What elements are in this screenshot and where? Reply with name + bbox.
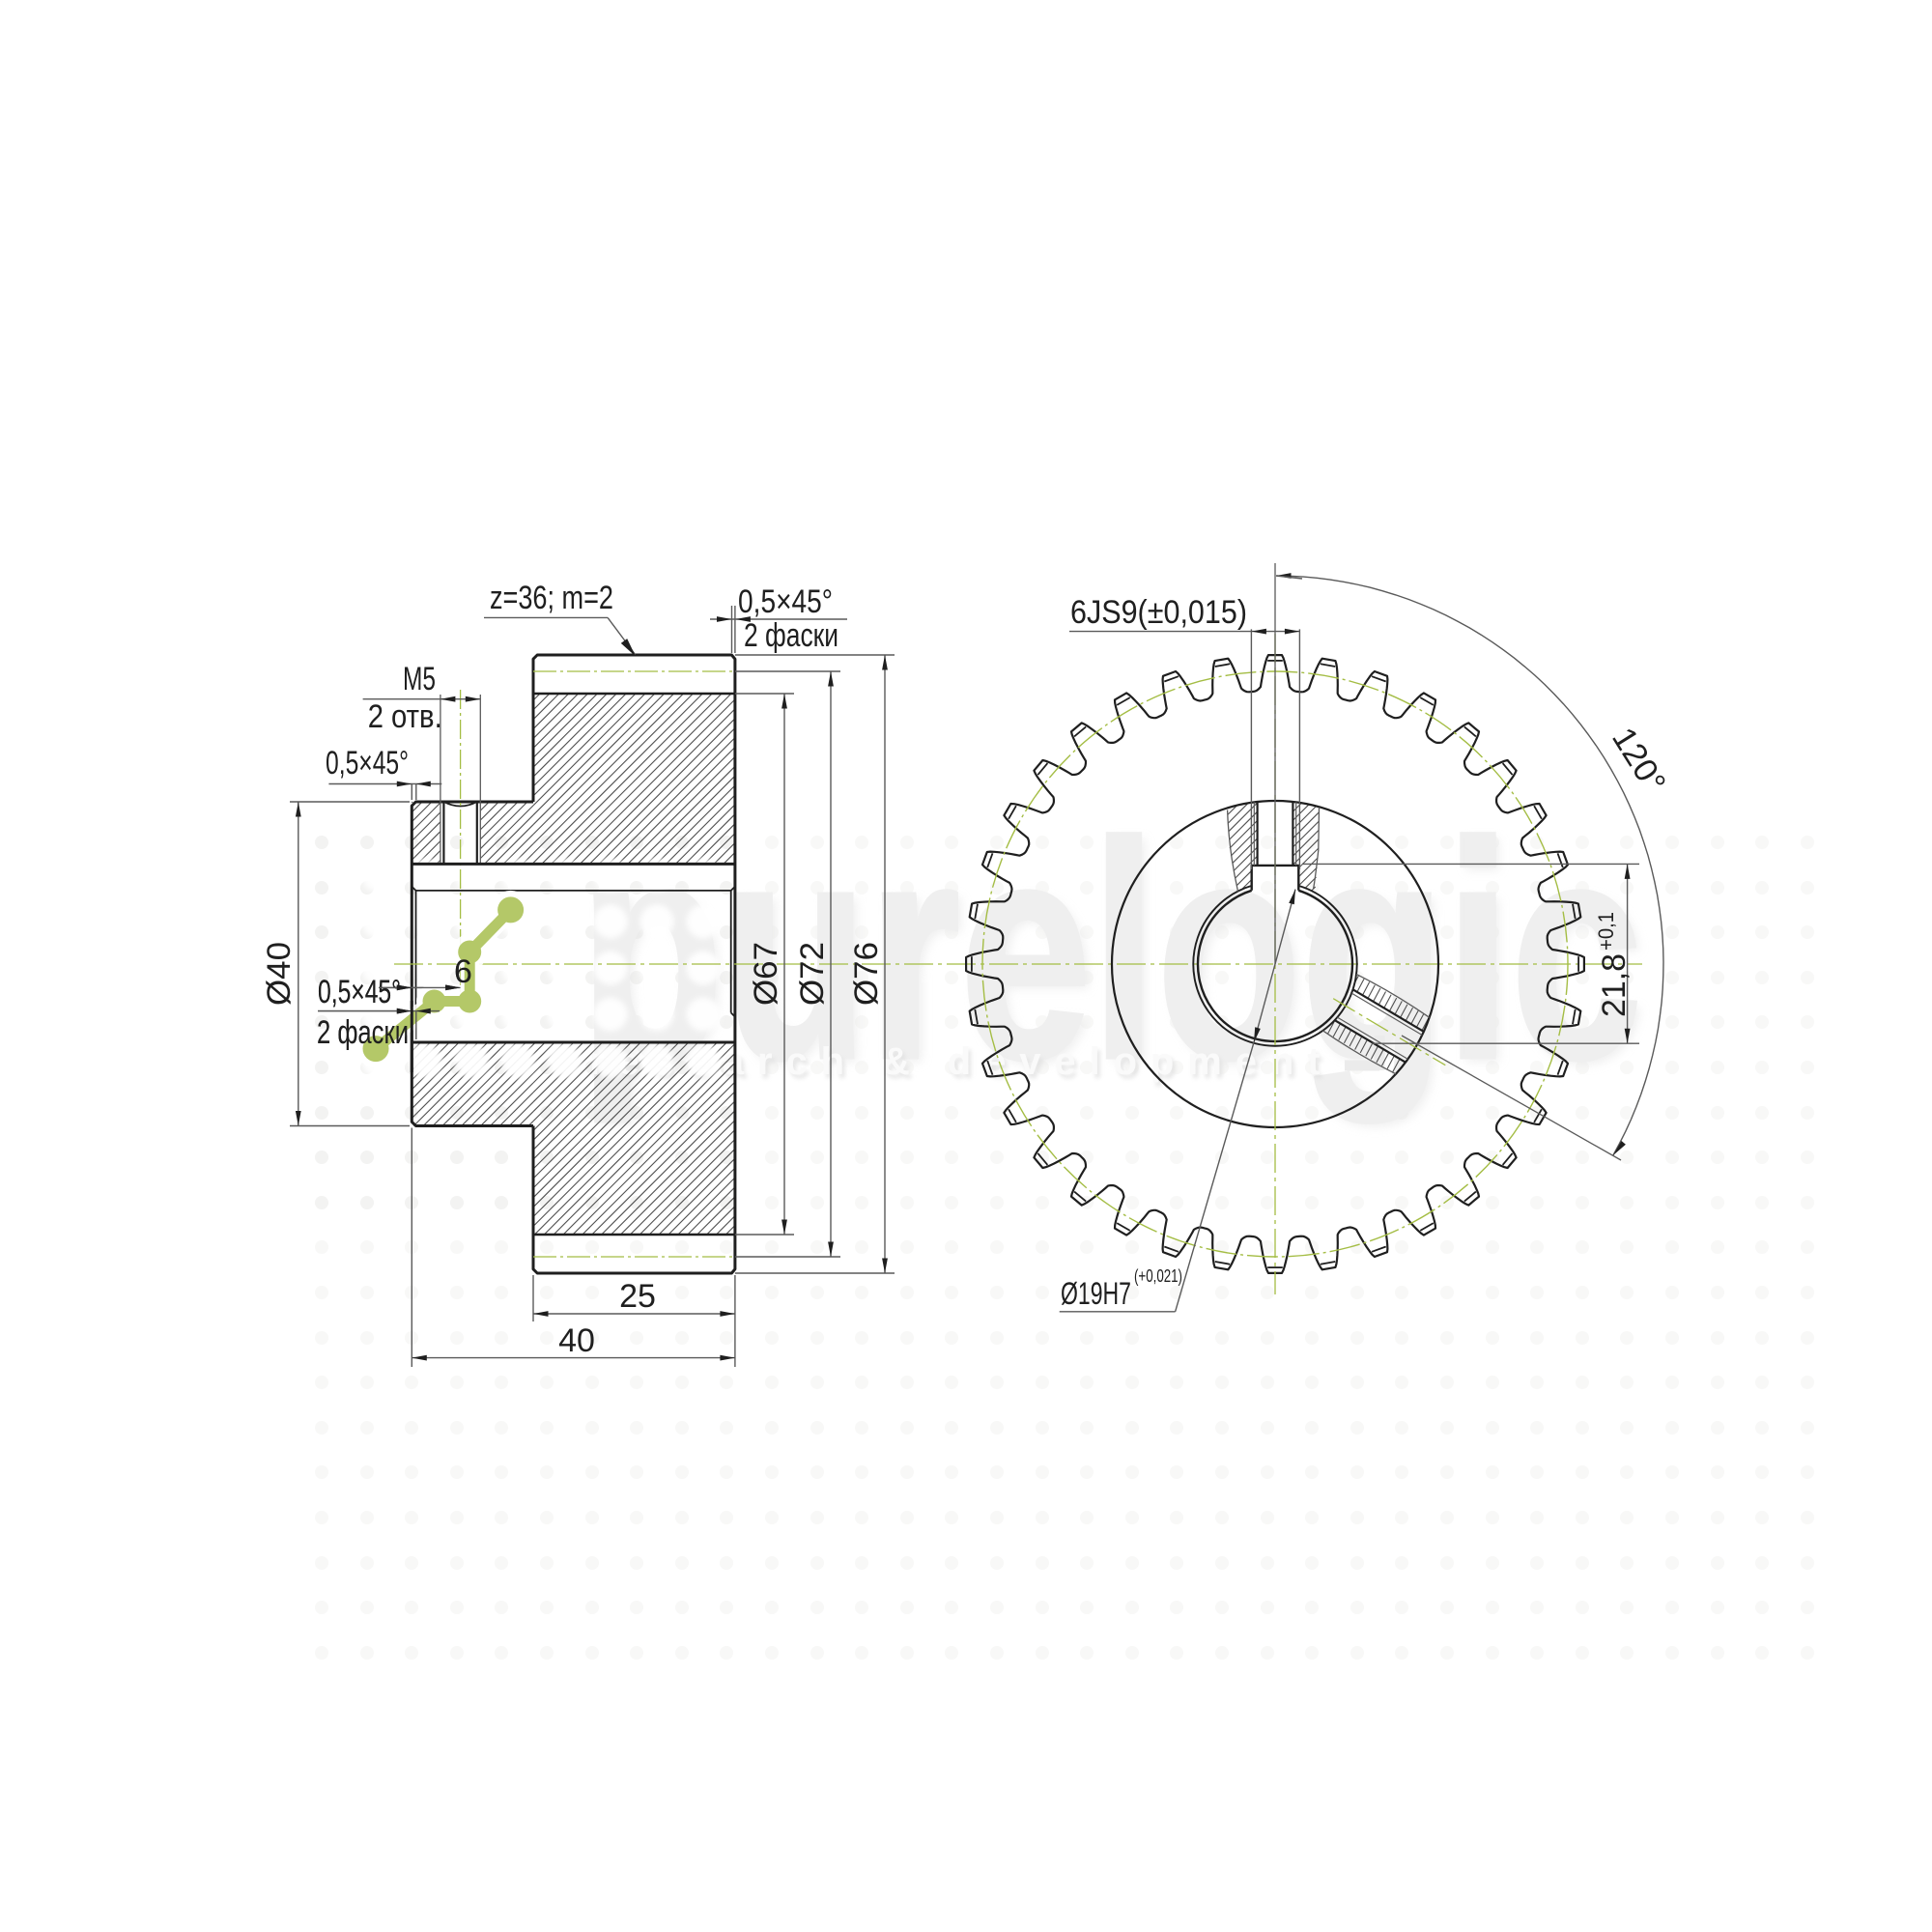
- svg-text:Ø19H7: Ø19H7: [1061, 1276, 1131, 1311]
- svg-text:Ø72: Ø72: [794, 942, 831, 1006]
- svg-text:0,5×45°: 0,5×45°: [318, 974, 401, 1010]
- svg-text:0,5×45°: 0,5×45°: [738, 583, 833, 620]
- svg-text:2 отв.: 2 отв.: [368, 698, 442, 735]
- svg-text:M5: M5: [403, 661, 436, 697]
- svg-text:(+0,021): (+0,021): [1134, 1266, 1182, 1286]
- svg-text:Ø40: Ø40: [261, 942, 298, 1006]
- svg-text:25: 25: [619, 1278, 656, 1315]
- svg-text:0,5×45°: 0,5×45°: [326, 745, 409, 781]
- svg-text:21,8: 21,8: [1596, 953, 1633, 1017]
- svg-text:+0,1: +0,1: [1594, 912, 1618, 951]
- svg-text:Ø67: Ø67: [748, 942, 784, 1006]
- svg-text:Ø76: Ø76: [848, 942, 885, 1006]
- svg-text:40: 40: [558, 1322, 595, 1359]
- svg-text:6: 6: [454, 953, 472, 990]
- svg-text:2 фаски: 2 фаски: [744, 617, 838, 654]
- svg-text:2 фаски: 2 фаски: [317, 1014, 409, 1051]
- svg-text:z=36; m=2: z=36; m=2: [490, 580, 613, 616]
- svg-text:6JS9(±0,015): 6JS9(±0,015): [1070, 594, 1247, 631]
